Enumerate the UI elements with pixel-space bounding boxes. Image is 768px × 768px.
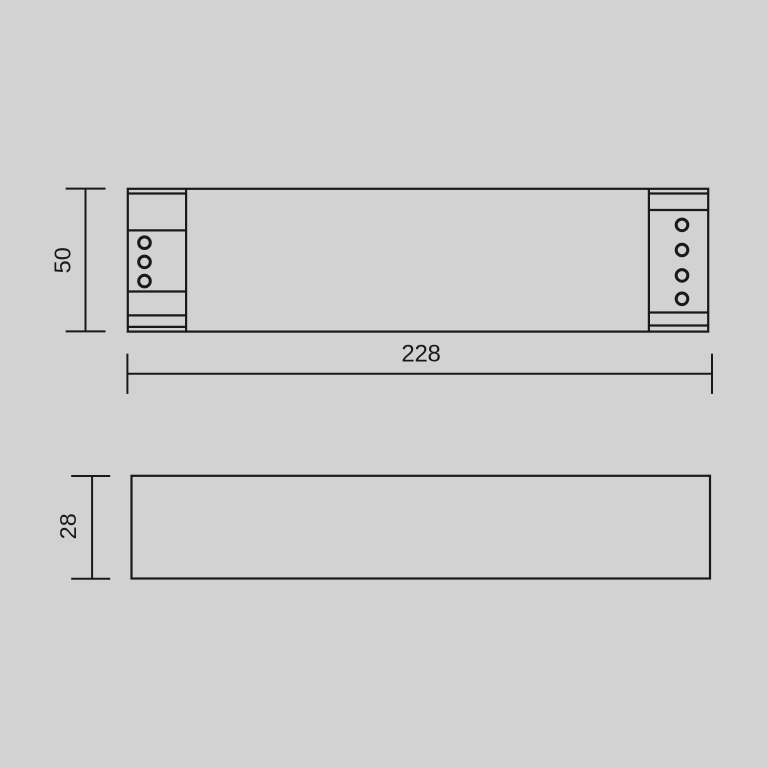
svg-text:28: 28 (55, 513, 81, 539)
svg-text:50: 50 (50, 247, 76, 273)
svg-text:228: 228 (401, 340, 440, 367)
